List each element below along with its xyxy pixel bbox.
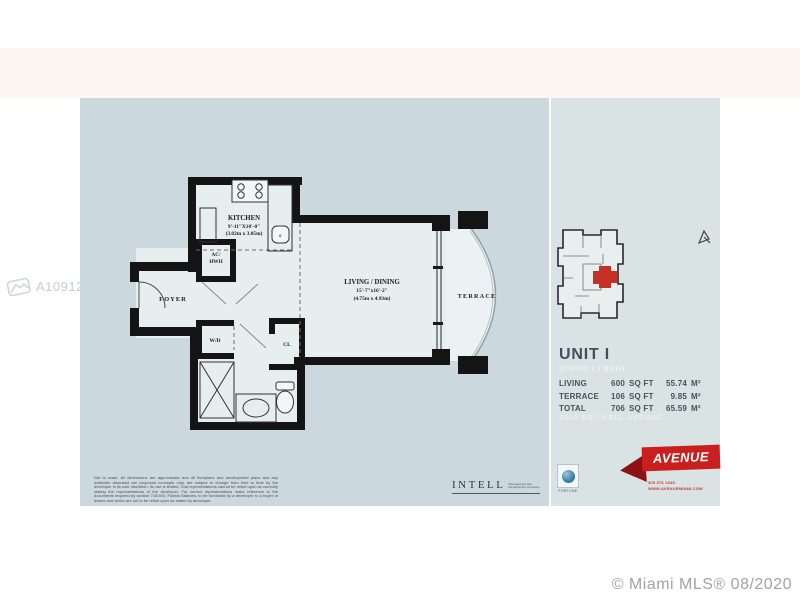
- kitchen-dim-ft: 9'-11"X10'-0": [228, 224, 260, 230]
- ac-label-1: AC/: [212, 252, 221, 258]
- stove-icon: [232, 180, 268, 202]
- fortune-globe-icon: [557, 464, 579, 488]
- fortune-logo: FORTUNE: [557, 464, 579, 493]
- table-row: TOTAL 706 SQ FT 65.59 M²: [559, 404, 707, 413]
- mls-credit: © Miami MLS® 08/2020: [612, 576, 792, 594]
- building-keyplan: [555, 226, 633, 326]
- floorplan-panel: c KITCHEN 9'-11"X10'-0" (3.02m x 3.05m): [80, 98, 549, 506]
- living-label: LIVING / DINING: [344, 279, 400, 286]
- intell-wordmark: INTELL: [452, 479, 505, 491]
- table-row: TERRACE 106 SQ FT 9.85 M²: [559, 392, 707, 401]
- living-dim-ft: 15'-7"x16'-2": [356, 288, 387, 294]
- living-dim-m: (4.75m x 4.93m): [354, 295, 391, 302]
- building-address: 1060 BRICKELL AVENUE: [559, 415, 662, 422]
- table-row: LIVING 600 SQ FT 55.74 M²: [559, 379, 707, 388]
- kitchen-dim-m: (3.02m x 3.05m): [226, 230, 263, 237]
- kitchen-label: KITCHEN: [228, 215, 260, 222]
- kitchen-sink-icon: c: [272, 226, 289, 243]
- website-url: WWW.AVENUEMIAMI.COM: [648, 486, 703, 492]
- top-tint-band: [0, 48, 800, 98]
- foyer-label: FOYER: [159, 296, 187, 303]
- area-table: LIVING 600 SQ FT 55.74 M² TERRACE 106 SQ…: [559, 379, 707, 417]
- disclaimer-text: Not to scale. All dimensions are approxi…: [94, 476, 278, 504]
- ac-label-2: HWH: [209, 259, 222, 265]
- fortune-label: FORTUNE: [557, 489, 579, 493]
- toilet-icon: [276, 382, 294, 413]
- floorplan-drawing: c KITCHEN 9'-11"X10'-0" (3.02m x 3.05m): [80, 98, 549, 506]
- north-arrow-icon: [695, 228, 713, 246]
- mls-watermark-icon: [6, 276, 32, 296]
- intell-logo: INTELL Management and Development Compan…: [452, 479, 540, 494]
- intell-tagline: Management and Development Company: [508, 483, 539, 491]
- unit-title: UNIT I: [559, 346, 610, 364]
- contact-info: 305 376 1945 WWW.AVENUEMIAMI.COM: [648, 480, 703, 492]
- avenue-wordmark: AVENUE: [642, 445, 721, 472]
- unit-info-panel: UNIT I STUDIO / 1 BATH LIVING 600 SQ FT …: [551, 98, 720, 506]
- wd-label: W/D: [209, 338, 220, 344]
- cl-label: CL: [283, 342, 291, 348]
- unit-subtitle: STUDIO / 1 BATH: [559, 366, 625, 373]
- mls-photo-page: A10912510: [0, 0, 800, 600]
- terrace-label: TERRACE: [458, 293, 497, 300]
